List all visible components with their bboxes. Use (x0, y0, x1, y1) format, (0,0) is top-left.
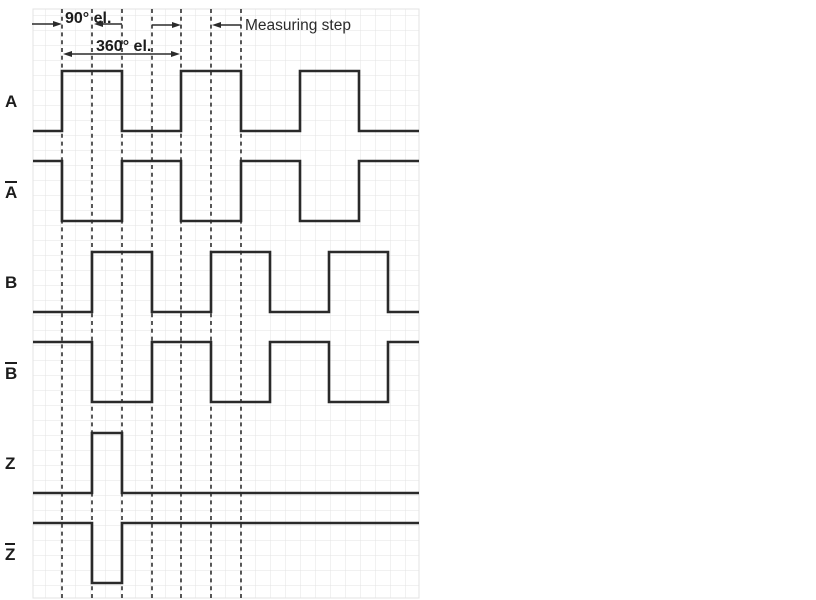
signal-label-B: B (5, 270, 17, 294)
signal-label-A: A (5, 89, 17, 113)
label-90deg-el: 90° el. (65, 10, 111, 28)
signal-label-A-bar: A (5, 179, 17, 203)
label-measuring-step: Measuring step (245, 17, 351, 35)
timing-diagram: 90° el. 360° el. Measuring step A A B B … (0, 0, 816, 600)
signal-label-Z: Z (5, 451, 15, 475)
timing-diagram-canvas (0, 0, 816, 600)
label-360deg-el: 360° el. (96, 38, 151, 56)
signal-label-Z-bar: Z (5, 541, 15, 565)
signal-label-B-bar: B (5, 360, 17, 384)
